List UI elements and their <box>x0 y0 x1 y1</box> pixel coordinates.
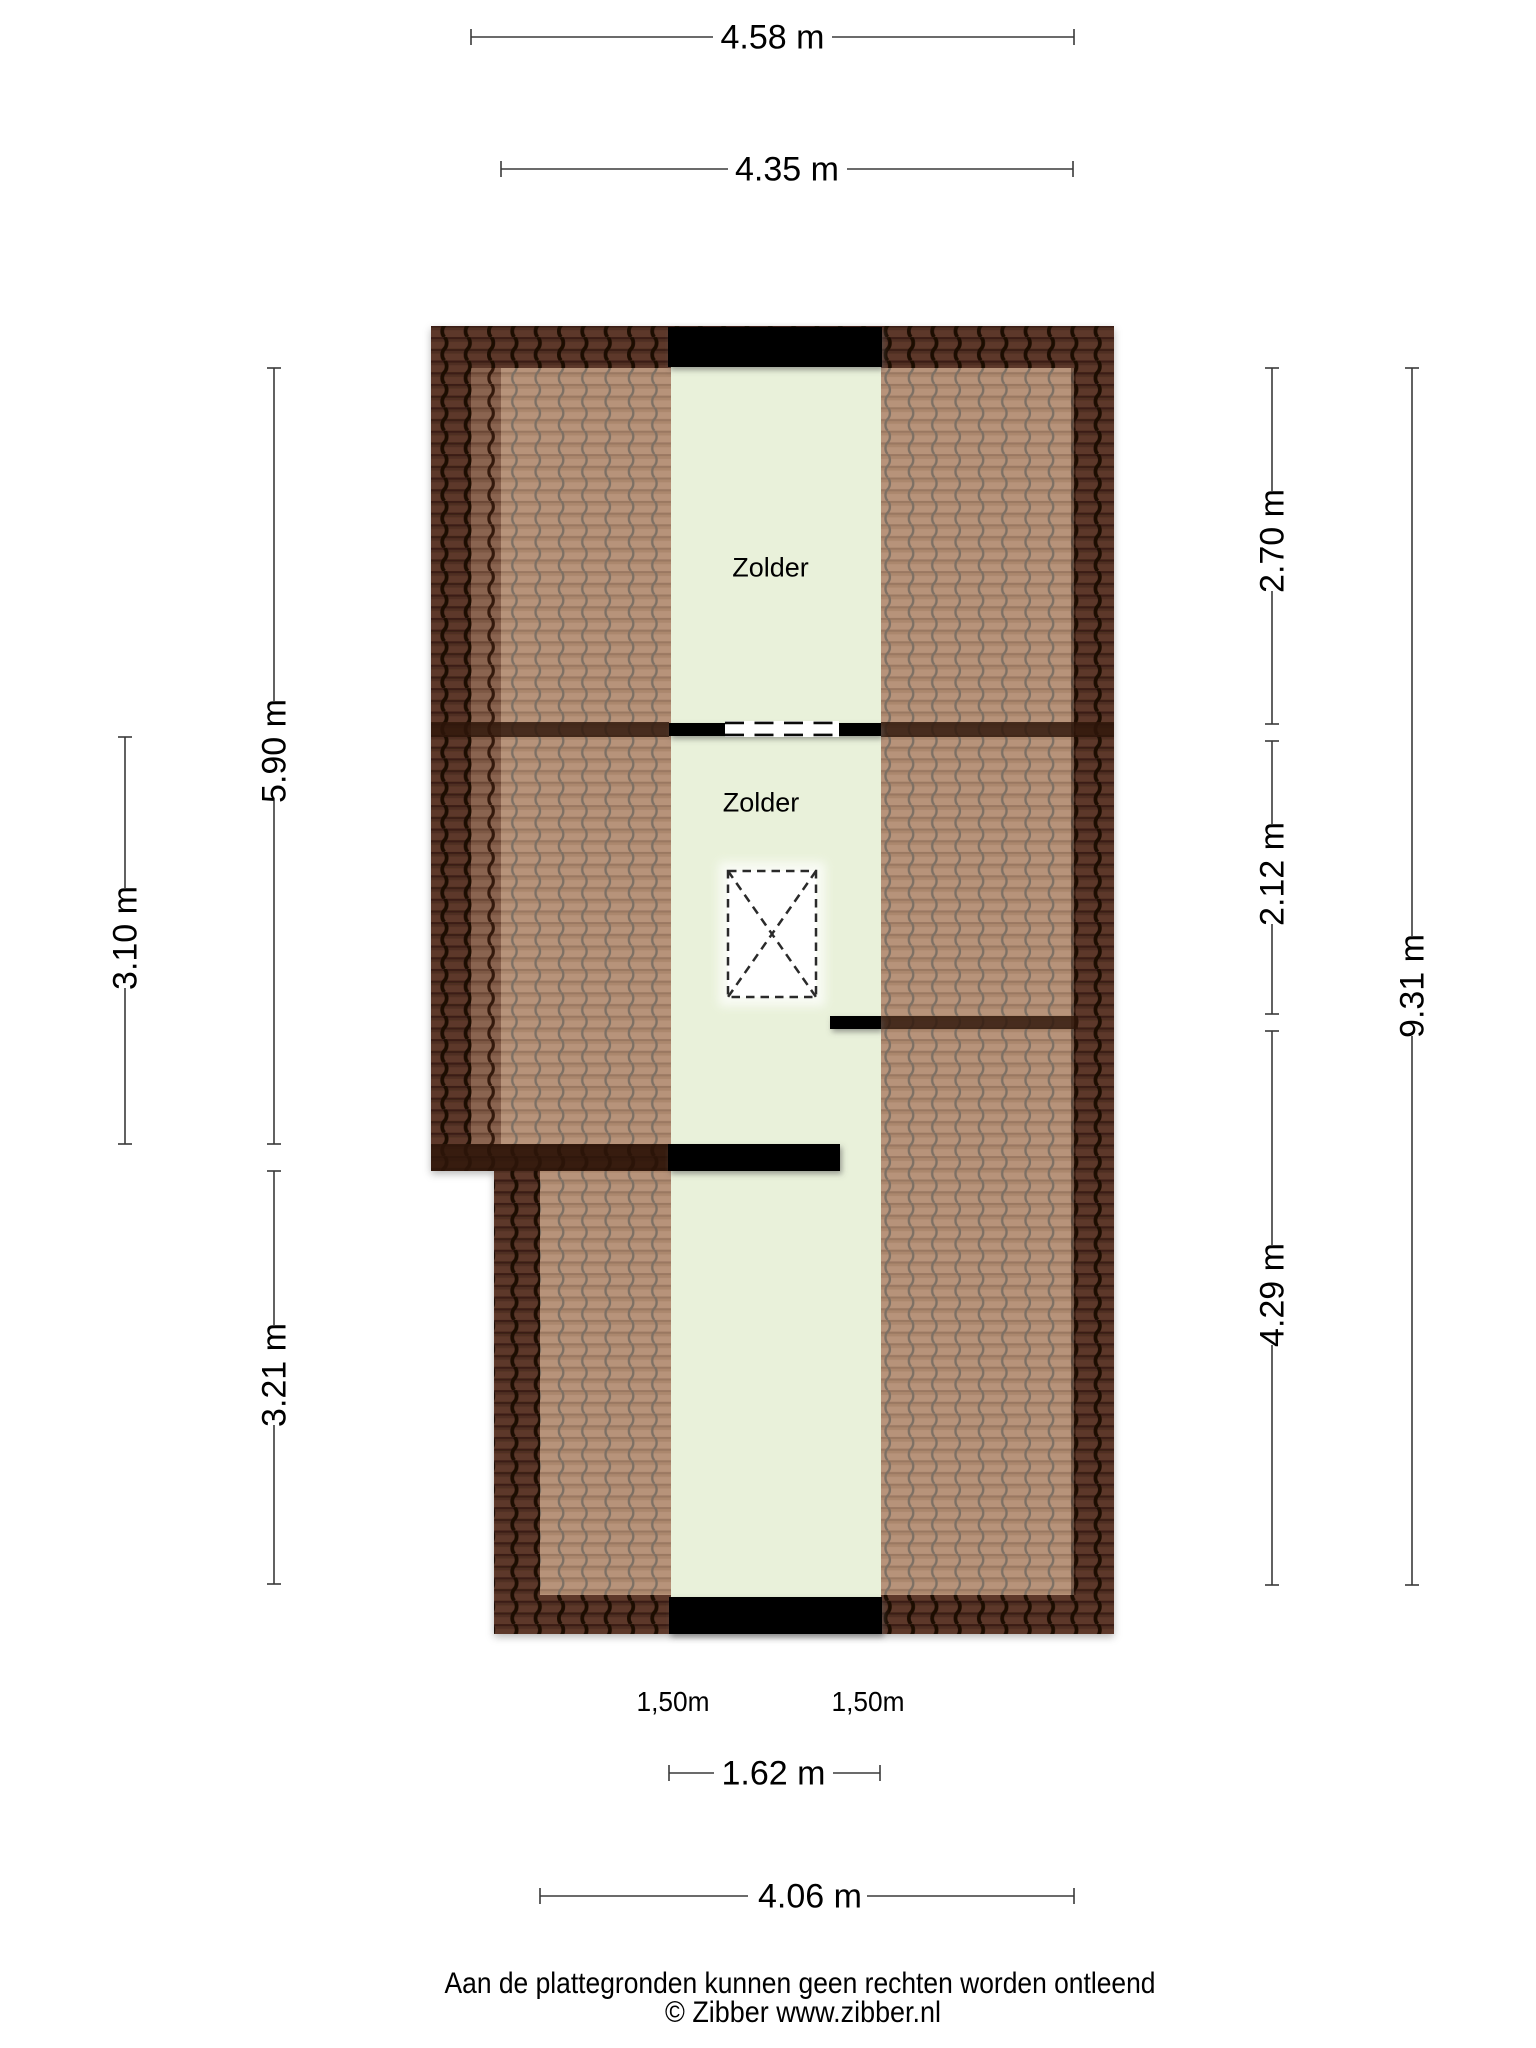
svg-text:3.10 m: 3.10 m <box>107 886 145 990</box>
svg-text:4.35 m: 4.35 m <box>735 151 839 189</box>
svg-text:2.70 m: 2.70 m <box>1254 489 1292 593</box>
svg-text:4.58 m: 4.58 m <box>721 19 825 57</box>
svg-text:Zolder: Zolder <box>732 553 809 583</box>
svg-text:© Zibber www.zibber.nl: © Zibber www.zibber.nl <box>665 1996 941 2029</box>
svg-text:3.21 m: 3.21 m <box>256 1323 294 1427</box>
svg-text:1,50m: 1,50m <box>637 1686 710 1717</box>
svg-text:Zolder: Zolder <box>723 788 800 818</box>
svg-text:1.62 m: 1.62 m <box>722 1755 826 1793</box>
svg-text:1,50m: 1,50m <box>832 1686 905 1717</box>
svg-text:4.29 m: 4.29 m <box>1254 1243 1292 1347</box>
svg-text:2.12 m: 2.12 m <box>1254 822 1292 926</box>
svg-text:4.06 m: 4.06 m <box>758 1878 862 1916</box>
svg-text:9.31 m: 9.31 m <box>1394 934 1432 1038</box>
svg-text:5.90 m: 5.90 m <box>256 699 294 803</box>
